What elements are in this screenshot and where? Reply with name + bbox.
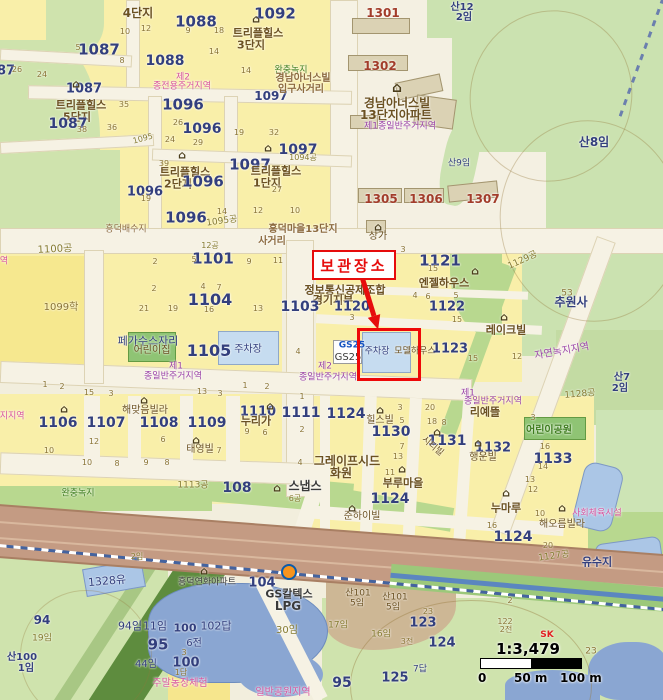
annotation-target-rect [357, 328, 421, 381]
map-label: 사거리 [258, 237, 286, 247]
scale-ratio: 1:3,479 [496, 640, 560, 658]
map-label: 경남아너스빌 [275, 74, 330, 84]
map-label: 1답 [175, 669, 187, 677]
map-label: 53 [561, 290, 572, 299]
map-label: 3 [400, 246, 405, 254]
scale-tick-0: 0 [478, 671, 486, 685]
map-label: 2임 [131, 553, 143, 561]
map-label: 102답 [200, 621, 231, 632]
map-label: 10 [82, 459, 92, 467]
map-label: 1099학 [44, 303, 79, 313]
map-label: 44임 [135, 660, 157, 670]
map-label: 95 [148, 638, 169, 653]
map-label: 1328유 [88, 574, 127, 588]
map-label: 1109 [188, 416, 227, 430]
map-label: 108 [222, 481, 251, 495]
map-label: 26 [12, 66, 22, 74]
map-label: 1111 [282, 406, 321, 420]
map-label: 어린이집 [134, 346, 171, 356]
map-label: 9 [143, 459, 148, 467]
map-label: 7 [216, 447, 221, 455]
map-label: 엔젤하우스 [419, 278, 470, 289]
house-icon: ⌂ [398, 464, 406, 475]
map-label: 13 [393, 453, 403, 461]
map-label: 어린이공원 [526, 426, 572, 436]
house-icon: ⌂ [500, 312, 508, 323]
map-label: 11 [385, 469, 395, 477]
map-label: 12 [528, 486, 538, 494]
house-icon: ⌂ [376, 405, 384, 416]
map-label: 일반공원지역 [255, 688, 310, 698]
map-label: 19임 [32, 635, 52, 644]
map-label: 누마루 [491, 503, 521, 514]
map-label: 8 [164, 459, 169, 467]
map-label: 6전 [186, 639, 202, 649]
map-label: 주말농장체험 [152, 679, 207, 689]
map-label: 리예뜰 [470, 407, 500, 418]
map-label: 1100공 [37, 244, 72, 256]
map-label: 1113공 [177, 482, 208, 491]
map-label: GS칼텍스 [265, 589, 312, 600]
map-label: 1130 [372, 425, 411, 439]
map-label: 8 [441, 419, 446, 427]
map-label: 15 [468, 355, 478, 363]
house-icon: ⌂ [266, 401, 274, 412]
map-label: 흥덕배수지 [105, 226, 146, 235]
map-label: 35 [119, 101, 129, 109]
map-label: 1096 [165, 211, 207, 226]
house-icon: ⌂ [178, 150, 186, 161]
house-icon: ⌂ [72, 79, 80, 90]
house-icon: ⌂ [374, 222, 382, 233]
scale-tick-50: 50 m [514, 671, 547, 685]
map-label: 6 [262, 429, 267, 437]
map-label: 4 [200, 283, 205, 291]
map-label: 10 [290, 207, 300, 215]
map-label: 4 [297, 459, 302, 467]
map-label: 2 [264, 383, 269, 391]
map-label: 2 [299, 426, 304, 434]
map-label: 16 [204, 306, 214, 314]
map-label: 30임 [276, 626, 298, 636]
map-label: 제2 [318, 363, 332, 372]
map-label: 10 [120, 28, 130, 36]
map-label: 19 [234, 129, 244, 137]
map-label: 5 [453, 292, 458, 300]
map-label: 1096 [162, 98, 204, 113]
map-label: 36 [107, 124, 117, 132]
map-label: 9 [244, 428, 249, 436]
house-icon: ⌂ [140, 395, 148, 406]
map-label: 17임 [328, 622, 348, 631]
map-label: 5 [191, 256, 196, 264]
map-label: 1108 [140, 416, 179, 430]
map-label: 21 [139, 305, 149, 313]
map-label: 1306 [409, 193, 442, 205]
map-label: 2 [152, 258, 157, 266]
road [84, 250, 104, 384]
map-label: 5임 [386, 604, 400, 613]
map-label: 1087 [78, 43, 120, 58]
map-label: 1 [242, 382, 247, 390]
house-icon: ⌂ [502, 488, 510, 499]
map-label: 부루마을 [383, 478, 423, 489]
map-label: 1103 [281, 300, 320, 314]
map-label: 행운빌 [469, 453, 497, 463]
map-label: 역 [0, 258, 8, 267]
map-label: 5 [75, 44, 80, 52]
map-label: 1123 [432, 343, 468, 356]
map-label: 9 [185, 27, 190, 35]
map-label: 23 [423, 608, 433, 616]
house-icon: ⌂ [264, 143, 272, 154]
map-label: 10 [44, 447, 54, 455]
map-label: 1120 [334, 301, 370, 314]
map-label: 94임 [118, 621, 142, 632]
map-label: 4단지 [123, 7, 153, 19]
map-label: 7 [399, 443, 404, 451]
map-label: 종일반주거지역 [464, 398, 522, 407]
map-label: 제1종일반주거지역 [364, 123, 436, 132]
map-label: 1107 [87, 416, 126, 430]
map-label: 6공 [289, 495, 301, 503]
map-label: 스냅스 [288, 480, 321, 492]
map-label: 2 [151, 285, 156, 293]
map-label: 3 [108, 390, 113, 398]
map-label: 125 [381, 672, 408, 685]
map-label: 1124 [371, 492, 410, 506]
map-label: 123 [409, 617, 436, 630]
map-label: 12 [253, 207, 263, 215]
map-label: 32 [269, 129, 279, 137]
map-label: 종일반주거지역 [299, 374, 357, 383]
map-label: 제1 [169, 363, 183, 372]
map-label: 트리플힐스 [251, 166, 302, 177]
map-label: 산101 [345, 590, 370, 599]
map-label: 트리플힐스 [233, 28, 284, 39]
map-label: 3전 [401, 638, 413, 646]
map-label: 100 [174, 623, 197, 634]
map-label: 3 [530, 414, 535, 422]
map-label: 1106 [39, 416, 78, 430]
map-label: 완충녹지 [61, 490, 94, 499]
map-label: 2전 [500, 626, 512, 634]
map-label: 1305 [364, 193, 397, 205]
map-label: 흥덕마을13단지 [268, 225, 337, 235]
map-label: 2 [59, 383, 64, 391]
house-icon: ⌂ [273, 483, 281, 494]
house-icon: ⌂ [348, 503, 356, 514]
map-label: 15 [428, 265, 438, 273]
house-icon: ⌂ [558, 503, 566, 514]
map-label: 산9임 [448, 160, 470, 169]
map-label: 16임 [371, 631, 391, 640]
map-label: 1092 [254, 7, 296, 22]
map-label: 124 [428, 637, 455, 650]
scale-bar [480, 658, 582, 669]
map-label: 95 [332, 676, 351, 690]
scale-tick-100: 100 m [560, 671, 602, 685]
map-label: 16 [487, 522, 497, 530]
map-label: 94 [34, 614, 51, 626]
map-label: 12 [141, 25, 151, 33]
map-label: 6 [160, 436, 165, 444]
map-label: 1302 [363, 60, 396, 72]
map-label: 1096 [183, 122, 222, 136]
house-icon: ⌂ [471, 266, 479, 277]
map-label: 13 [197, 388, 207, 396]
map-label: 1122 [429, 301, 465, 314]
map-label: 24 [37, 71, 47, 79]
map-label: 3 [217, 390, 222, 398]
map-label: 1301 [366, 7, 399, 19]
map-label: 23 [585, 648, 596, 657]
green-area [0, 150, 120, 234]
map-label: 6 [425, 293, 430, 301]
building [352, 18, 410, 34]
map-label: 2임 [612, 384, 628, 394]
map-label: 20 [543, 542, 553, 550]
map-label: 9 [246, 258, 251, 266]
map-label: 화원 [330, 467, 352, 479]
map-label: 트리플힐스 [56, 100, 107, 111]
house-icon: ⌂ [433, 427, 441, 438]
map-label: 1124 [327, 407, 366, 421]
map-label: 13 [253, 305, 263, 313]
map-label: 4 [295, 348, 300, 356]
map-label: 19 [168, 305, 178, 313]
map-label: 흥덕연화아파트 [178, 579, 236, 588]
map-label: 유수지 [582, 557, 612, 568]
map-label: 1124 [494, 530, 533, 544]
map-label: 12 [89, 438, 99, 446]
map-label: 1088 [175, 15, 217, 30]
map-label: 11 [273, 257, 283, 265]
map-label: 녹지지역 [0, 413, 25, 422]
map-label: 3 [397, 404, 402, 412]
map-label: 15 [452, 316, 462, 324]
map-label: 종전용주거지역 [153, 83, 211, 92]
map-label: 해오름빌라 [539, 520, 585, 530]
house-icon: ⌂ [60, 404, 68, 415]
map-label: 15 [84, 389, 94, 397]
map-label: 5 [399, 417, 404, 425]
map-label: 상가 [369, 232, 387, 242]
map-label: 누리가 [241, 416, 271, 427]
map-label: 14 [538, 463, 548, 471]
map-label: 14 [241, 67, 251, 75]
map-canvas[interactable]: 4단지10881092트리플힐스3단지10871088871087트리플힐스5단… [0, 0, 663, 700]
map-label: 7답 [413, 666, 427, 675]
map-label: 13 [525, 476, 535, 484]
map-label: 10 [535, 510, 545, 518]
map-label: 1101 [192, 252, 234, 267]
map-label: 2임 [456, 13, 472, 23]
map-label: 16 [540, 443, 550, 451]
map-label: 12 [512, 353, 522, 361]
map-label: 산7 [614, 373, 630, 383]
map-label: 1105 [187, 343, 232, 359]
map-label: 20 [425, 404, 435, 412]
map-label: 산100 [7, 653, 37, 663]
landmark-icon: ⌂ [200, 566, 208, 577]
map-label: 4 [412, 292, 417, 300]
map-label: 2 [507, 597, 512, 605]
map-label: 3단지 [237, 40, 265, 51]
map-label: 1 [299, 393, 304, 401]
house-icon: ⌂ [252, 14, 260, 25]
annotation-label: 보관장소 [320, 255, 387, 276]
map-label: 27 [272, 186, 282, 194]
map-label: 18 [214, 27, 224, 35]
map-label: 13단지아파트 [360, 109, 432, 121]
gs-logo [281, 564, 297, 580]
house-icon: ⌂ [474, 438, 482, 449]
map-label: 19 [141, 195, 151, 203]
map-label: 39 [159, 160, 169, 168]
map-label: 8 [114, 460, 119, 468]
map-label: 29 [193, 139, 203, 147]
map-label: 사회체육시설 [572, 510, 622, 519]
map-label: 1 [42, 381, 47, 389]
map-label: LPG [275, 600, 301, 612]
map-label: 14 [217, 208, 227, 216]
sk-logo: SK [540, 630, 553, 640]
map-label: 7 [216, 284, 221, 292]
map-label: 1121 [419, 254, 461, 269]
annotation-box: 보관장소 [312, 250, 396, 280]
map-label: 주차장 [234, 345, 262, 355]
map-label: 1307 [466, 193, 499, 205]
map-label: 1094공 [289, 154, 317, 162]
map-label: 레이크빌 [486, 325, 526, 336]
map-label: 24 [165, 136, 175, 144]
map-label: 입구사거리 [278, 85, 324, 95]
map-label: 26 [173, 119, 183, 127]
parcel-block [0, 256, 88, 378]
map-label: 38 [77, 126, 87, 134]
map-label: 산8임 [579, 136, 609, 148]
house-icon: ⌂ [192, 435, 200, 446]
map-label: 11임 [143, 621, 167, 632]
map-label: 태영빌 [186, 445, 214, 455]
map-label: 종일반주거지역 [144, 373, 202, 382]
map-label: 3 [349, 314, 354, 322]
map-label: 1096 [182, 175, 224, 190]
map-label: 8 [119, 57, 124, 65]
map-label: 1088 [146, 54, 185, 68]
map-label: 5임 [350, 600, 364, 609]
map-label: 14 [209, 48, 219, 56]
map-label: 산101 [382, 594, 407, 603]
museum-icon: ⌂ [392, 81, 402, 95]
map-label: 1임 [18, 664, 34, 674]
road [226, 396, 240, 464]
